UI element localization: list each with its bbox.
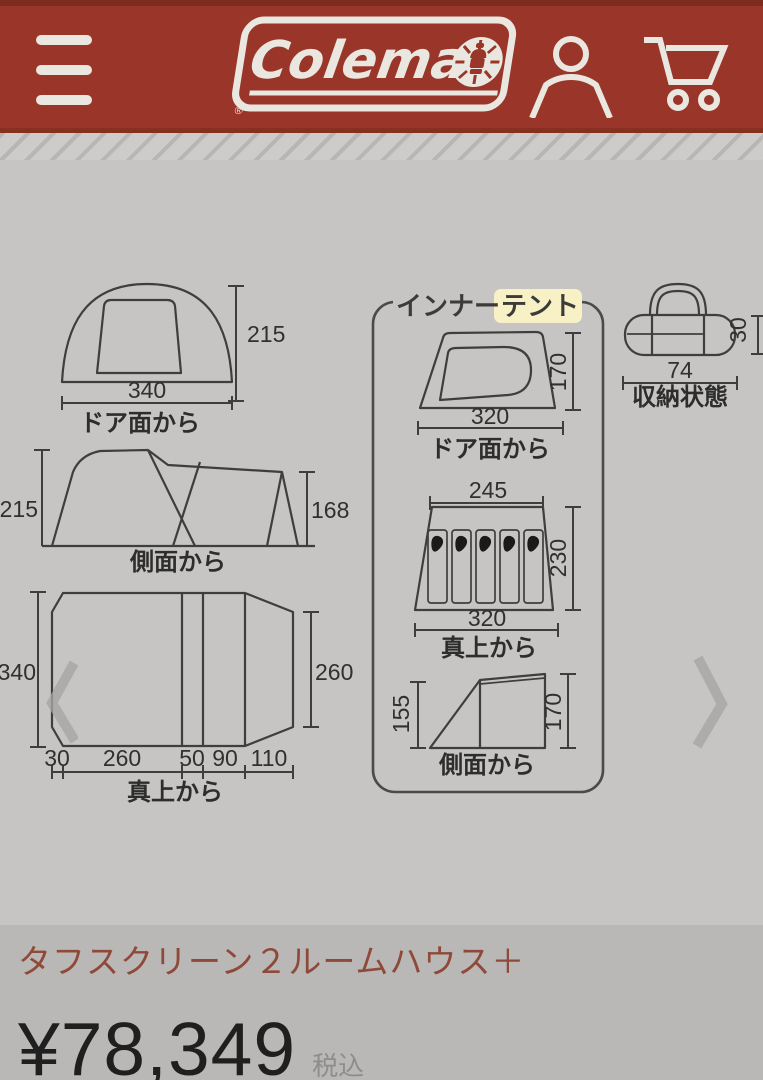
outer-side-right-height-label: 168 (311, 497, 349, 523)
inner-side-caption: 側面から (438, 752, 535, 779)
outer-front-caption: ドア面から (80, 410, 200, 437)
outer-top-segment-4: 110 (251, 745, 288, 771)
inner-front-caption: ドア面から (430, 436, 550, 463)
chevron-right-icon (692, 654, 728, 750)
coleman-logo-icon: Coleman ® (226, 14, 534, 116)
registered-trademark: ® (234, 105, 244, 116)
carousel-prev-button[interactable] (42, 658, 80, 748)
striped-divider (0, 133, 763, 160)
outer-top-segment-1: 260 (103, 745, 141, 771)
outer-top-segment-2: 50 (179, 745, 205, 771)
outer-top-right-depth-label: 260 (315, 659, 353, 685)
outer-top-left-depth-label: 340 (0, 659, 36, 685)
outer-front-width-label: 340 (128, 377, 166, 403)
outer-front-height-label: 215 (247, 321, 285, 347)
sleeping-bag-icons (428, 530, 543, 603)
cart-button[interactable] (640, 28, 744, 114)
hamburger-icon (36, 35, 94, 105)
inner-top-caption: 真上から (441, 634, 537, 662)
inner-tent-label-highlighted: テント (501, 291, 579, 321)
storage-bag-view: 30 74 収納状態 (623, 284, 763, 411)
outer-tent-side-view: 215 168 側面から (0, 450, 349, 576)
product-page: Coleman ® (0, 0, 763, 1080)
storage-caption: 収納状態 (632, 383, 728, 411)
product-price: ¥78,349 (18, 1010, 296, 1080)
inner-front-height-label: 170 (545, 353, 571, 391)
coleman-logo[interactable]: Coleman ® (226, 14, 534, 116)
chevron-left-icon (44, 659, 78, 745)
inner-tent-side-view: 155 170 側面から (388, 674, 576, 779)
account-button[interactable] (524, 34, 618, 118)
inner-tent-label: インナー (396, 291, 500, 321)
inner-side-right-height-label: 170 (540, 693, 566, 731)
inner-side-left-height-label: 155 (388, 695, 414, 733)
tent-dimension-diagram: 215 340 ドア面から 215 168 側面から (0, 160, 763, 925)
inner-tent-top-view: 245 (415, 477, 581, 662)
inner-tent-front-view: 170 320 ドア面から (418, 332, 581, 463)
menu-button[interactable] (36, 32, 94, 108)
person-icon (524, 34, 618, 118)
app-header: Coleman ® (0, 0, 763, 133)
outer-side-caption: 側面から (129, 549, 226, 576)
carousel-next-button[interactable] (690, 654, 730, 752)
outer-top-segment-0: 30 (44, 745, 70, 771)
tax-included-note: 税込 (312, 1046, 364, 1080)
inner-top-bottom-width-label: 320 (468, 605, 506, 631)
outer-side-left-height-label: 215 (0, 496, 38, 522)
inner-tent-panel: インナー テント 170 320 ドア面から (373, 289, 603, 792)
inner-front-width-label: 320 (471, 403, 509, 429)
outer-top-caption: 真上から (127, 778, 223, 806)
inner-top-width-label: 245 (469, 477, 507, 503)
cart-icon (640, 28, 744, 114)
outer-tent-front-view: 215 340 ドア面から (62, 284, 285, 437)
price-row: ¥78,349 税込 (18, 1010, 763, 1080)
storage-width-label: 74 (667, 357, 693, 383)
storage-height-label: 30 (725, 317, 751, 343)
product-title: タフスクリーン２ルームハウス＋ (18, 941, 763, 982)
product-info-section: タフスクリーン２ルームハウス＋ ¥78,349 税込 (0, 925, 763, 1080)
product-image-carousel: 215 340 ドア面から 215 168 側面から (0, 160, 763, 925)
inner-top-depth-label: 230 (545, 539, 571, 577)
outer-top-segment-3: 90 (212, 745, 238, 771)
